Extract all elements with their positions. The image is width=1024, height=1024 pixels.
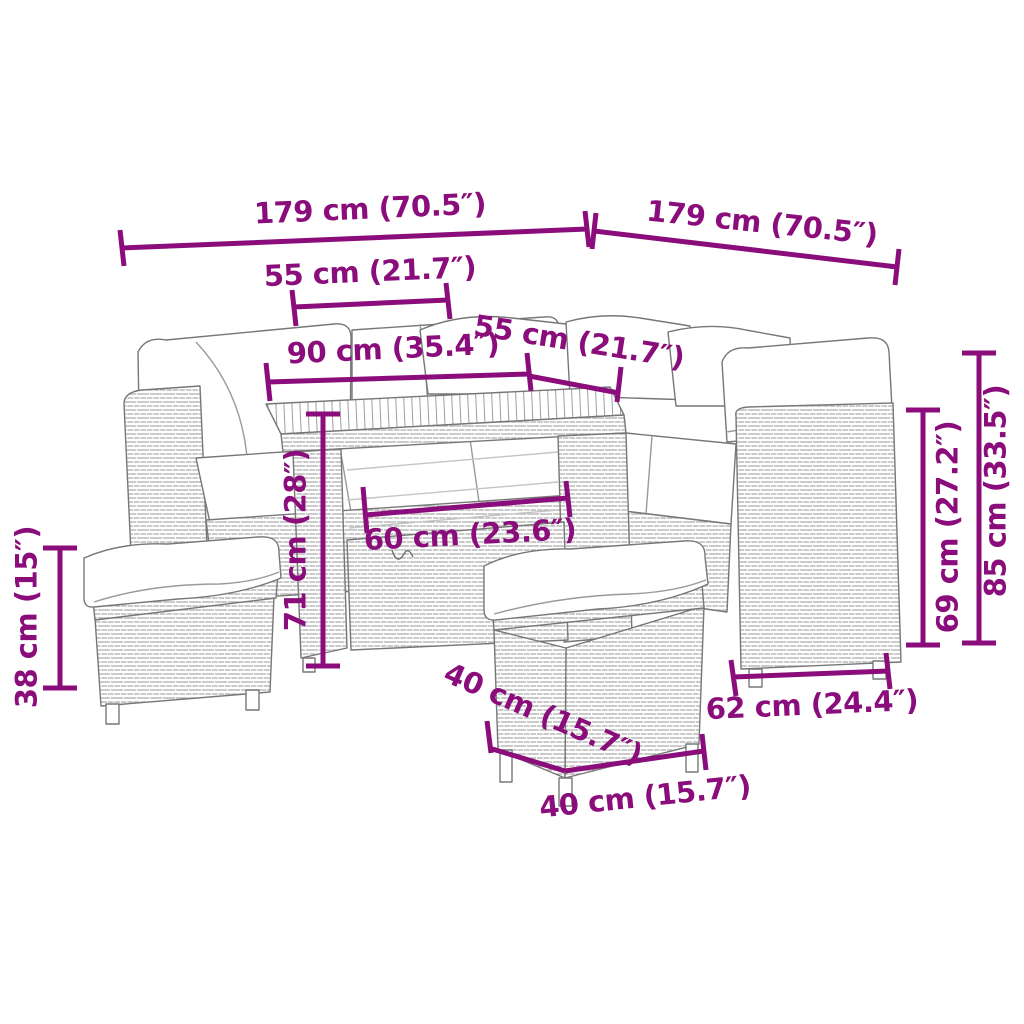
dim-label-stool-height: 38 cm (15″) [13, 526, 42, 708]
right-armrest [736, 403, 901, 669]
furniture-line-art [0, 0, 1024, 1024]
stool-leg [106, 704, 119, 724]
dimension-diagram: 179 cm (70.5″) 179 cm (70.5″) 55 cm (21.… [0, 0, 1024, 1024]
stool-leg [686, 744, 698, 772]
dim-label-total-height: 85 cm (33.5″) [982, 385, 1011, 597]
stool-leg [246, 690, 259, 710]
left-stool [84, 537, 281, 724]
left-armrest [124, 386, 207, 554]
dim-line-stool-height [43, 548, 77, 688]
dim-label-table-height: 71 cm (28″) [282, 449, 311, 631]
dim-label-backrest-height: 69 cm (27.2″) [934, 421, 963, 633]
